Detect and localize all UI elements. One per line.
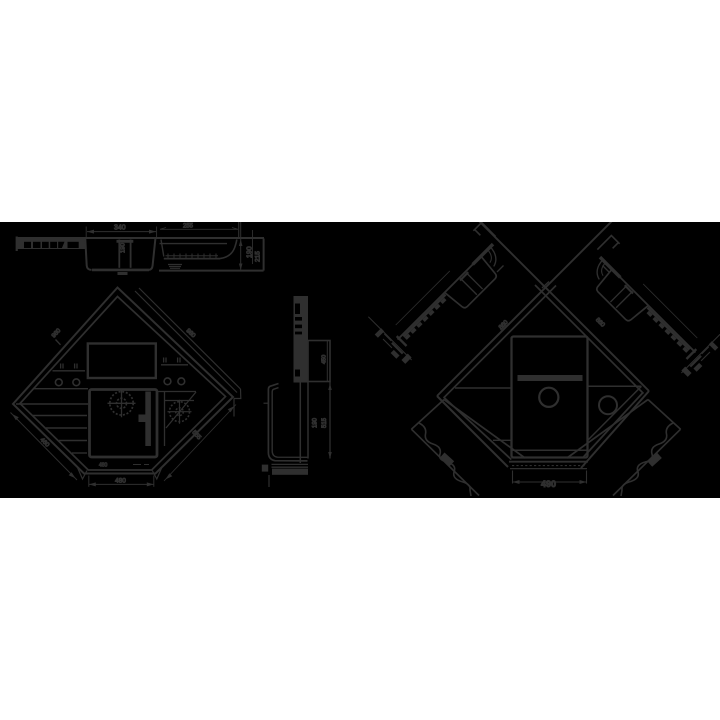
svg-text:190: 190: [121, 242, 127, 253]
svg-text:190: 190: [313, 417, 319, 428]
svg-text:340: 340: [114, 225, 126, 232]
svg-text:480: 480: [115, 477, 126, 484]
svg-text:255: 255: [183, 224, 194, 230]
svg-text:215: 215: [255, 251, 262, 262]
svg-text:490: 490: [541, 479, 556, 489]
svg-text:450: 450: [322, 355, 328, 364]
svg-text:515: 515: [322, 417, 328, 428]
svg-text:980: 980: [185, 328, 197, 340]
svg-text:555: 555: [191, 430, 203, 442]
svg-text:480: 480: [99, 463, 108, 469]
svg-text:860: 860: [498, 319, 510, 331]
svg-text:980: 980: [51, 327, 63, 339]
